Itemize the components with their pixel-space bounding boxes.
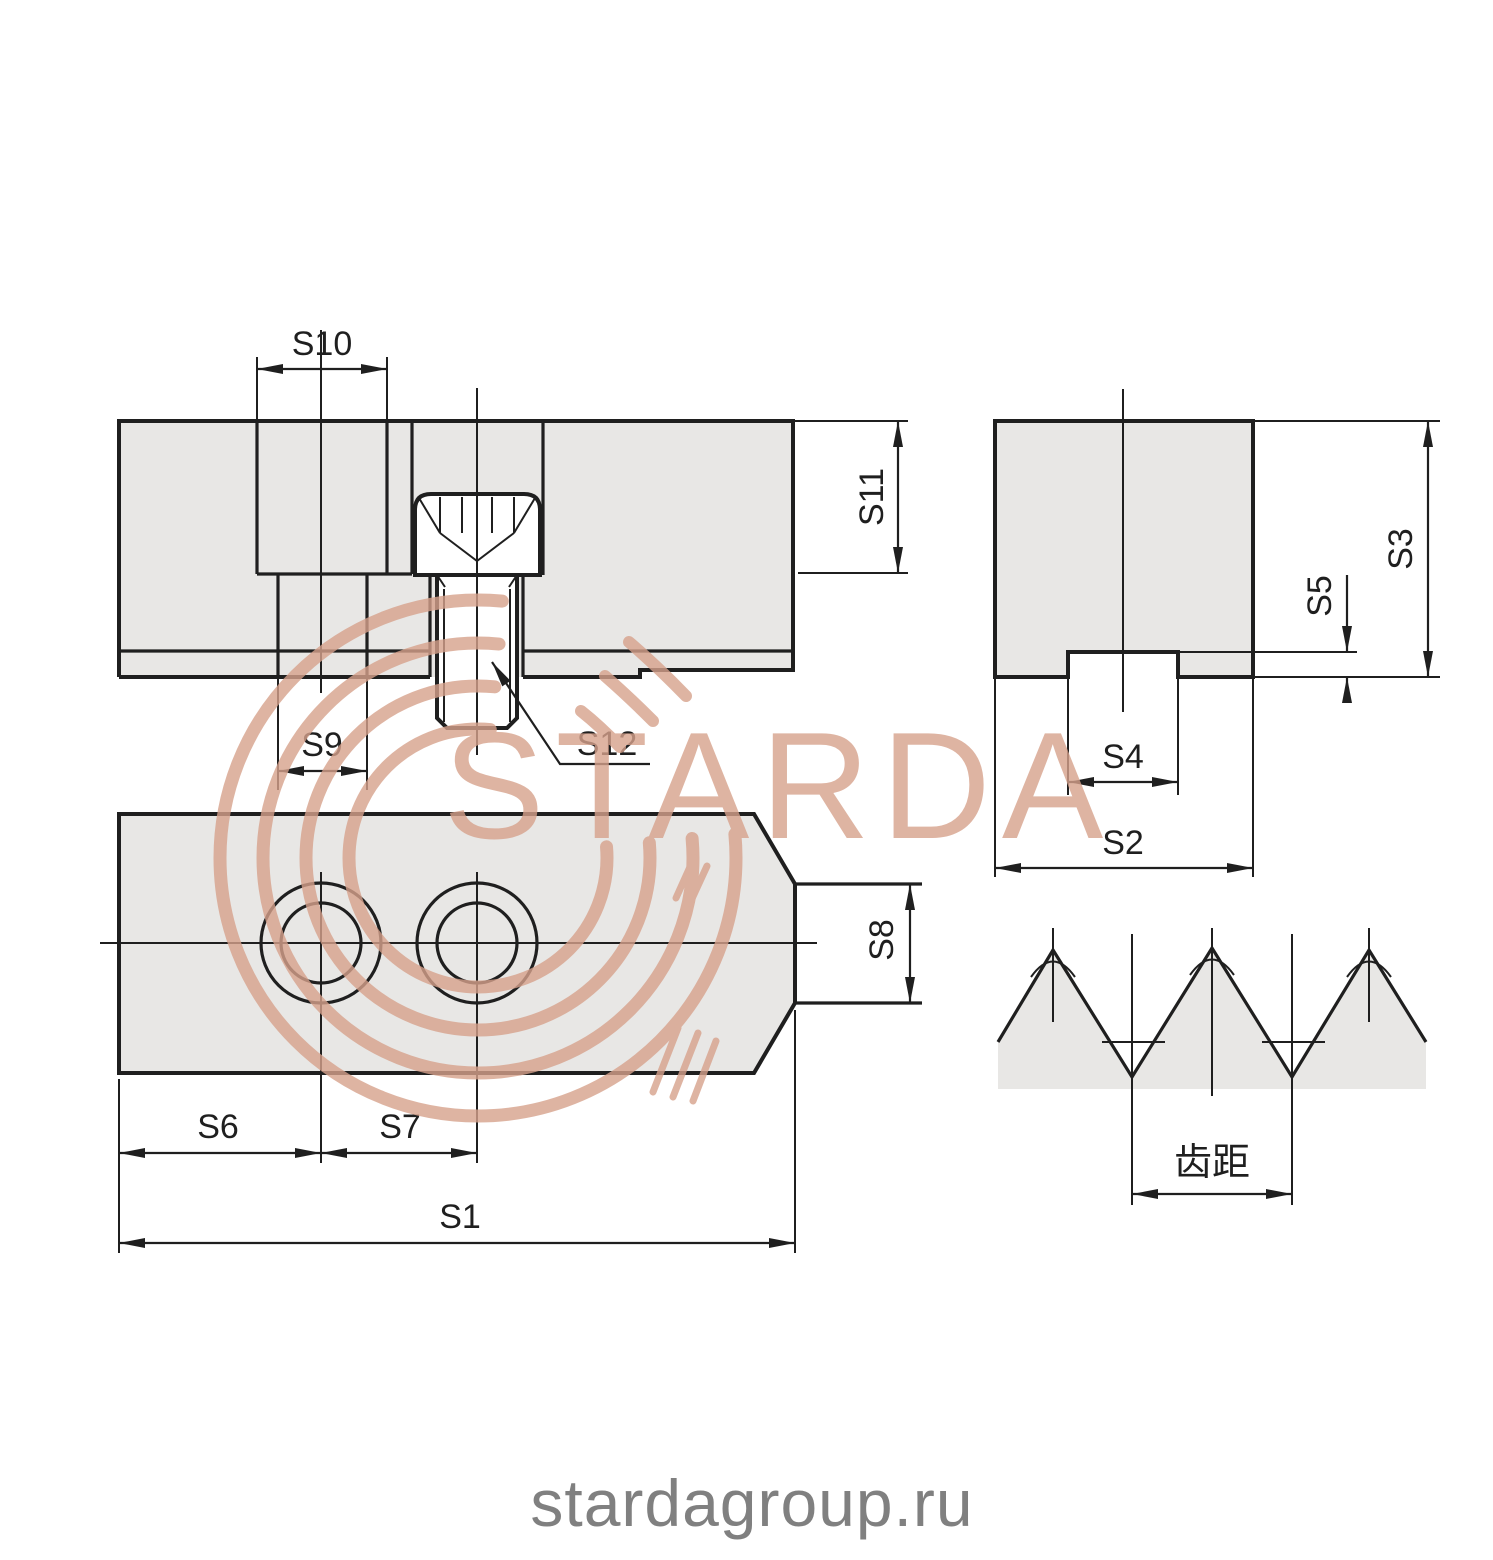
dim-label-s11: S11 xyxy=(853,468,891,526)
technical-drawing: S10 S9 S11 S12 S2 S4 S5 S3 xyxy=(0,0,1493,1560)
watermark-brand-text: STARDA xyxy=(443,701,1114,871)
dim-label-s6: S6 xyxy=(197,1108,239,1146)
dim-label-s5: S5 xyxy=(1301,575,1339,617)
site-url-text: stardagroup.ru xyxy=(530,1466,973,1540)
dim-label-s8: S8 xyxy=(863,919,901,961)
serration-detail-view: 齿距 xyxy=(998,928,1426,1205)
dim-label-pitch: 齿距 xyxy=(1174,1142,1250,1184)
dim-label-s10: S10 xyxy=(292,325,353,363)
starda-watermark: STARDA xyxy=(220,600,1114,1116)
dim-label-s3: S3 xyxy=(1382,528,1420,570)
screenshot-canvas: S10 S9 S11 S12 S2 S4 S5 S3 xyxy=(0,0,1493,1560)
dim-label-s1: S1 xyxy=(439,1198,481,1236)
